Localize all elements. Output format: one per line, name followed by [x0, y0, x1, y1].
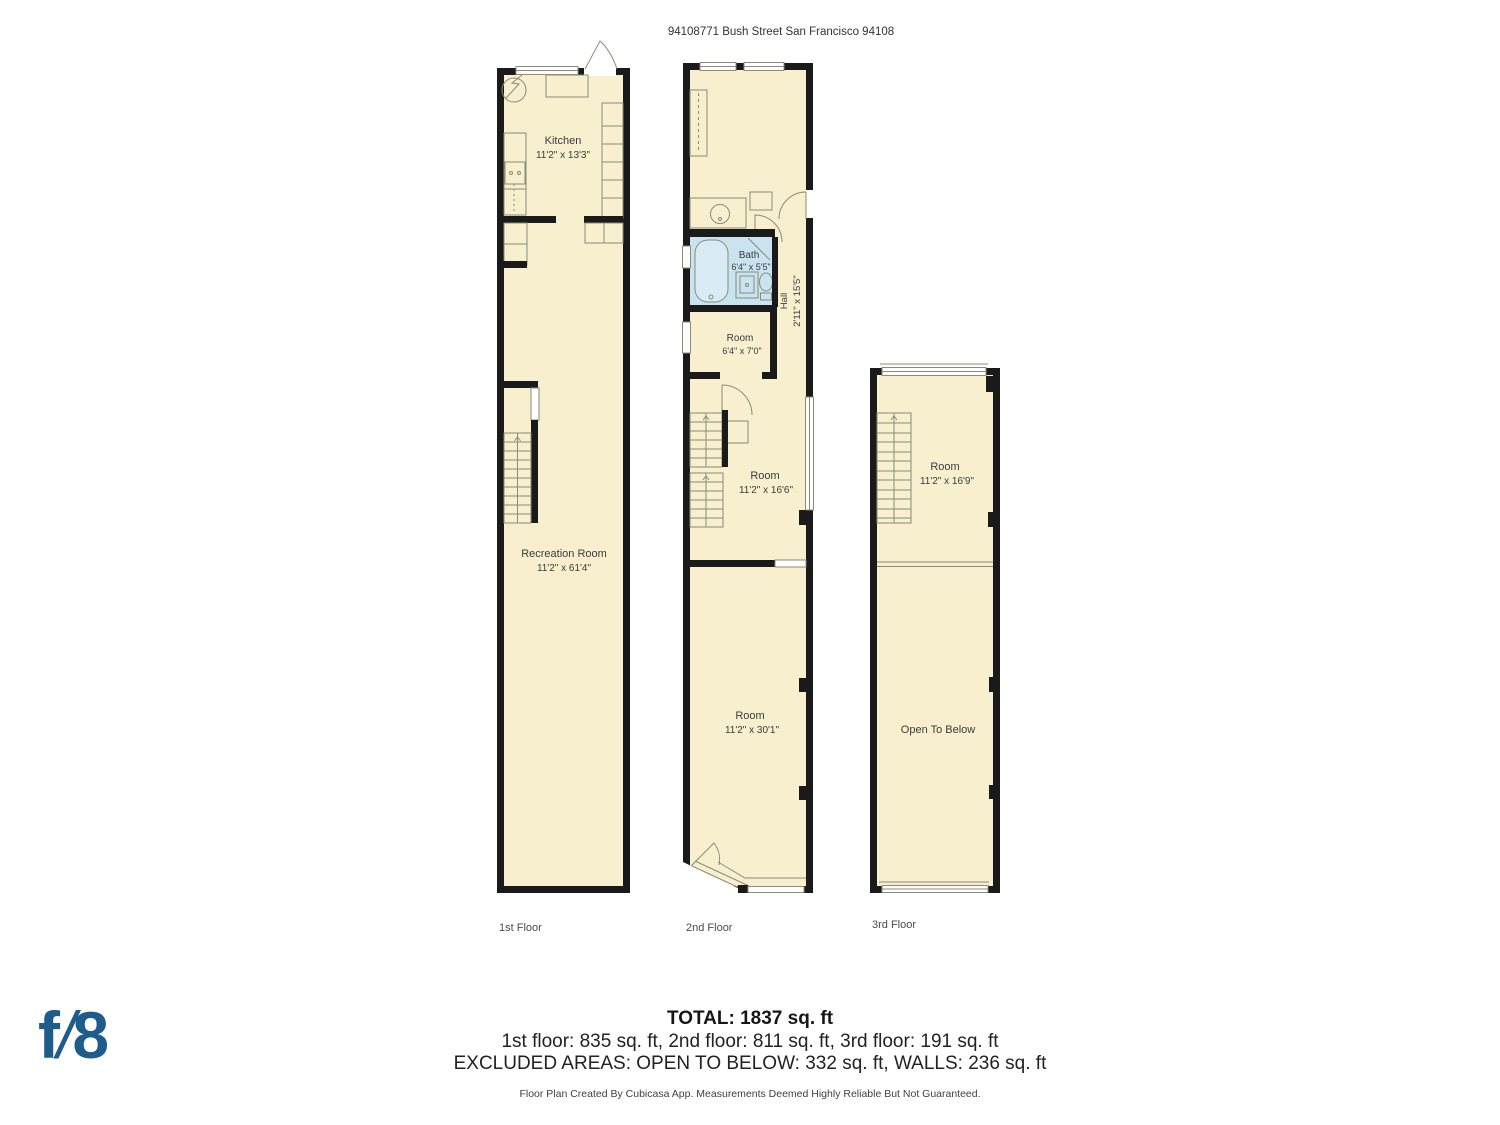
- floor-plan-2nd: Bath 6'4" x 5'5" Hall 2'11" x 15'5" Room…: [683, 63, 814, 894]
- room-dims-hall: 2'11" x 15'5": [792, 275, 803, 326]
- room-dims-small-room: 6'4" x 7'0": [722, 346, 761, 356]
- room-dims-3rd-room: 11'2" x 16'9": [920, 476, 975, 487]
- bathroom: Bath 6'4" x 5'5": [690, 237, 773, 305]
- excluded-areas-text: EXCLUDED AREAS: OPEN TO BELOW: 332 sq. f…: [0, 1053, 1500, 1075]
- floor-areas-text: 1st floor: 835 sq. ft, 2nd floor: 811 sq…: [0, 1031, 1500, 1053]
- floor-plan-page: 94108771 Bush Street San Francisco 94108: [0, 0, 1500, 1125]
- room-label-kitchen: Kitchen: [545, 135, 582, 147]
- room-label-hall: Hall: [779, 293, 790, 309]
- door-swing-icon: [584, 41, 617, 76]
- room-label-bath: Bath: [739, 250, 760, 261]
- disclaimer-text: Floor Plan Created By Cubicasa App. Meas…: [0, 1088, 1500, 1100]
- floor-plans-canvas: Kitchen 11'2" x 13'3" Recreation Room 11…: [0, 0, 1500, 960]
- floor-label-3rd: 3rd Floor: [872, 919, 916, 931]
- logo-eight: 8: [72, 998, 109, 1072]
- floor-label-1st: 1st Floor: [499, 922, 542, 934]
- window-icon: [880, 364, 988, 376]
- total-area-text: TOTAL: 1837 sq. ft: [0, 1008, 1500, 1030]
- room-dims-kitchen: 11'2" x 13'3": [536, 150, 591, 161]
- room-label-mid-room: Room: [750, 470, 779, 482]
- room-label-open-to-below: Open To Below: [901, 724, 975, 736]
- room-label-big-room: Room: [735, 710, 764, 722]
- room-label-small-room: Room: [727, 333, 754, 344]
- room-dims-mid-room: 11'2" x 16'6": [739, 485, 794, 496]
- room-label-recreation: Recreation Room: [521, 548, 607, 560]
- bathtub-icon: [695, 240, 728, 302]
- room-dims-recreation: 11'2" x 61'4": [537, 563, 592, 574]
- f8-logo: f/8: [38, 1002, 109, 1068]
- floor-plan-3rd: Room 11'2" x 16'9" Open To Below: [870, 364, 1000, 893]
- floor-label-2nd: 2nd Floor: [686, 922, 732, 934]
- room-dims-big-room: 11'2" x 30'1": [725, 725, 780, 736]
- floor-plan-1st: Kitchen 11'2" x 13'3" Recreation Room 11…: [497, 41, 630, 893]
- room-dims-bath: 6'4" x 5'5": [731, 262, 770, 272]
- room-label-3rd-room: Room: [930, 461, 959, 473]
